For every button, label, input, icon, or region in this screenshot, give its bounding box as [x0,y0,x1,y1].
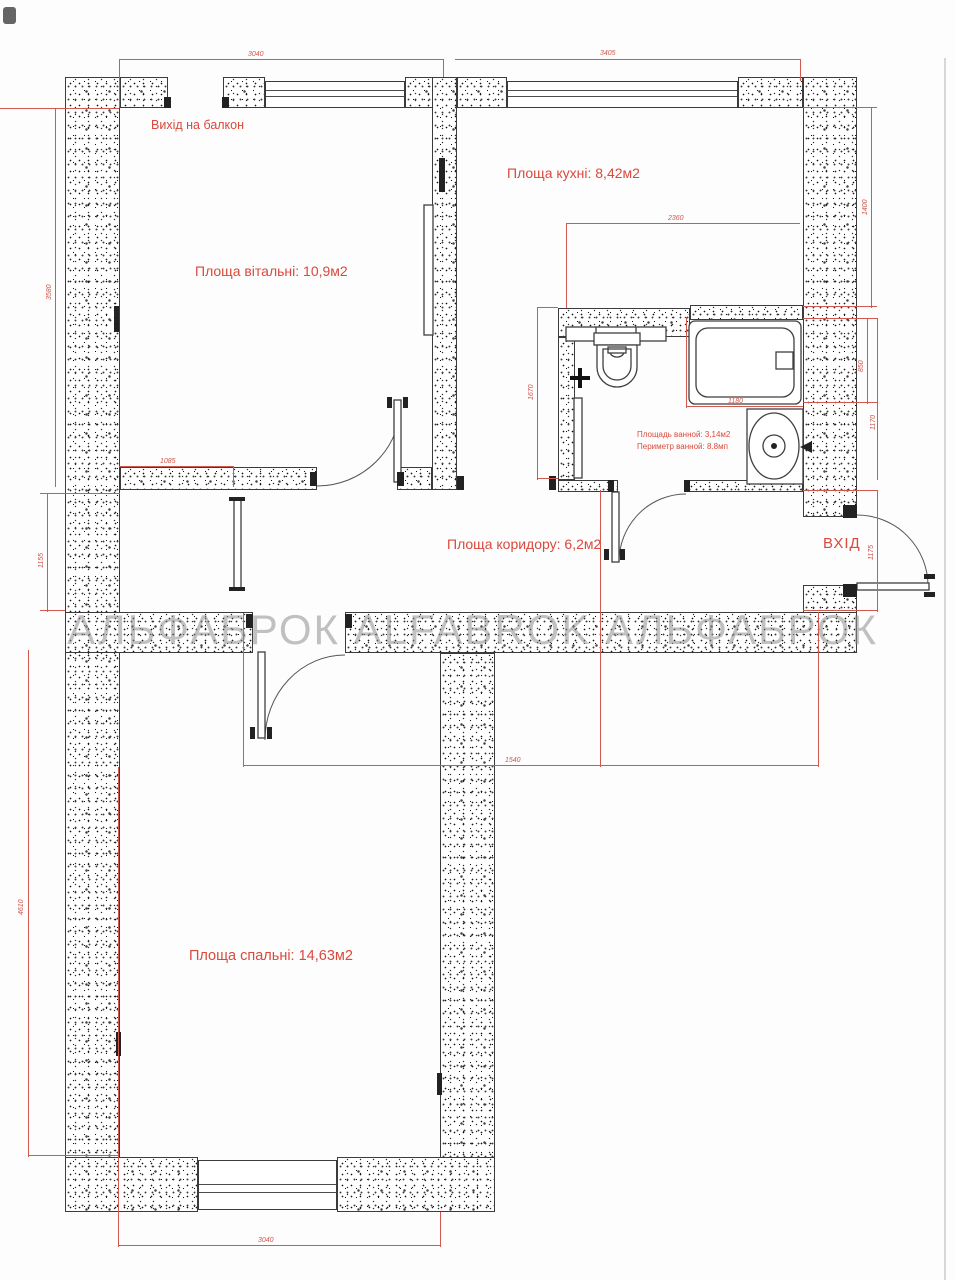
dim-line [877,490,878,612]
dim-label-living-width: 3040 [248,51,264,58]
dim-label-bath-right: 1170 [870,415,877,430]
dim-label-bedroom-left: 4610 [18,899,25,915]
dim-line [803,490,877,491]
dim-line [877,318,878,480]
dim-line [803,306,877,307]
dim-line [455,59,800,60]
label-living-room: Площа вітальні: 10,9м2 [195,263,348,279]
dim-label-corridor-bottom: 1540 [505,757,521,764]
wall-tick [114,306,119,332]
dim-label-bedroom-bottom: 3040 [258,1237,274,1244]
dim-label-bath-left: 1670 [528,384,535,400]
dim-line [119,59,120,108]
dim-label-tub-width: 1180 [728,398,743,405]
dim-line [443,59,444,77]
wall-tick [437,1073,442,1095]
dim-line [28,1155,118,1156]
dim-line [803,318,877,319]
toilet-icon [594,333,640,387]
label-entrance: ВХІД [823,535,861,552]
floor-plan-canvas: 3040 3405 3580 1155 1085 2360 1670 1180 … [0,0,955,1280]
dim-label-tub-right: 850 [858,360,865,372]
dim-label-entry-right: 1175 [868,545,875,560]
door-bathroom-pocket [570,368,590,478]
dim-line [233,466,234,487]
dim-line [47,493,48,612]
dim-line [119,466,233,467]
sink-icon [747,409,812,484]
dim-line [871,107,872,308]
label-balcony-exit: Вихід на балкон [151,118,244,132]
label-corridor: Площа коридору: 6,2м2 [447,536,601,552]
door-bedroom [250,652,345,740]
jamb-tick [684,480,690,492]
jamb-tick [457,476,464,490]
dim-line [40,493,120,494]
bathtub-icon [689,321,801,404]
dim-line [803,402,877,403]
dim-line [803,107,877,108]
dim-line [537,478,558,479]
wall-tick [439,158,445,192]
door-living [317,397,408,486]
corridor-partition [229,497,245,591]
dim-line [686,318,687,408]
dim-line [28,650,29,1157]
label-kitchen: Площа кухні: 8,42м2 [507,165,640,181]
jamb-tick [222,97,229,108]
dim-line [800,59,801,81]
watermark-text: АЛЬФАБРОК ALFABROK АЛЬФАБРОК [0,606,945,654]
entry-jamb-block [843,584,857,597]
dim-line [55,108,56,487]
dim-label-kitchen-inner: 2360 [668,215,684,222]
dim-label-living-height: 3580 [46,284,53,300]
dim-line [118,1245,440,1246]
dim-line [243,765,818,766]
dim-label-kitchen-right: 1400 [862,199,869,215]
dim-line [686,406,803,407]
dim-line [119,59,443,60]
dim-line [537,307,538,480]
dim-line [118,767,119,1247]
dim-line [440,1212,441,1247]
label-bath-perimeter: Периметр ванной: 8.8мп [637,443,728,451]
dim-line [537,307,558,308]
jamb-tick [164,97,171,108]
dim-label-kitchen-width: 3405 [600,50,616,57]
jamb-tick [310,472,317,486]
entry-jamb-block [843,505,857,518]
label-bath-area: Площадь ванной: 3,14м2 [637,431,730,439]
dim-line [566,223,567,308]
dim-line [867,318,868,404]
dim-line [0,108,119,109]
label-bedroom: Площа спальні: 14,63м2 [189,948,353,964]
dim-label-corridor-left: 1155 [38,553,45,568]
dim-line [566,223,800,224]
door-bathroom [604,492,686,562]
jamb-tick [397,472,404,486]
dim-label-living-door: 1085 [160,458,176,465]
wardrobe-strip [424,205,433,335]
jamb-tick [608,480,614,492]
